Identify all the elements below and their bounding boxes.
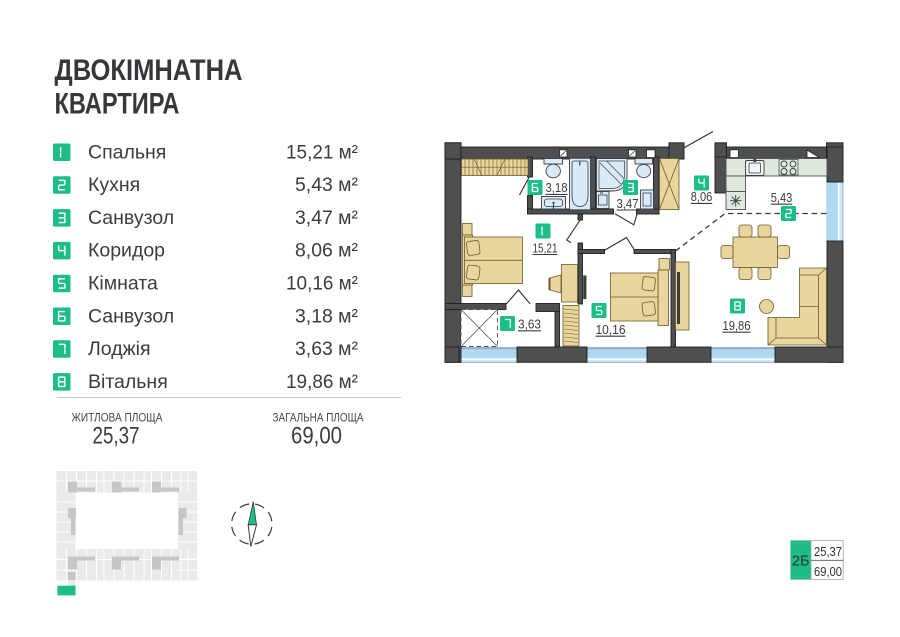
- svg-text:Кімната: Кімната: [88, 273, 158, 295]
- svg-text:КВАРТИРА: КВАРТИРА: [55, 88, 180, 121]
- svg-text:ДВОКІМНАТНА: ДВОКІМНАТНА: [55, 54, 243, 87]
- svg-text:Санвузол: Санвузол: [88, 305, 174, 327]
- svg-text:69,00: 69,00: [291, 423, 342, 450]
- svg-text:10,16 м²: 10,16 м²: [286, 273, 358, 295]
- svg-text:8,06: 8,06: [691, 190, 713, 204]
- svg-text:Коридор: Коридор: [88, 240, 165, 262]
- svg-text:3,47: 3,47: [617, 197, 639, 211]
- svg-text:25,37: 25,37: [93, 423, 140, 450]
- svg-text:Лоджія: Лоджія: [88, 338, 151, 360]
- svg-text:2Б: 2Б: [792, 554, 810, 570]
- svg-text:3,63: 3,63: [518, 318, 541, 332]
- svg-text:15,21: 15,21: [533, 241, 558, 255]
- svg-text:8,06 м²: 8,06 м²: [295, 240, 358, 262]
- svg-text:3,18 м²: 3,18 м²: [295, 305, 358, 327]
- svg-text:19,86 м²: 19,86 м²: [286, 371, 358, 393]
- svg-text:3,47 м²: 3,47 м²: [295, 207, 358, 229]
- svg-text:Вітальня: Вітальня: [88, 371, 168, 393]
- svg-text:Спальня: Спальня: [88, 141, 166, 163]
- svg-text:15,21 м²: 15,21 м²: [286, 141, 358, 163]
- svg-text:25,37: 25,37: [814, 545, 842, 559]
- svg-text:10,16: 10,16: [596, 323, 626, 337]
- svg-text:19,86: 19,86: [723, 319, 751, 333]
- svg-text:Санвузол: Санвузол: [88, 207, 174, 229]
- svg-text:3,18: 3,18: [546, 181, 568, 195]
- svg-text:5,43 м²: 5,43 м²: [295, 174, 358, 196]
- svg-text:69,00: 69,00: [814, 565, 842, 579]
- svg-text:3,63 м²: 3,63 м²: [295, 338, 358, 360]
- svg-text:Кухня: Кухня: [88, 174, 140, 196]
- svg-text:5,43: 5,43: [771, 191, 793, 205]
